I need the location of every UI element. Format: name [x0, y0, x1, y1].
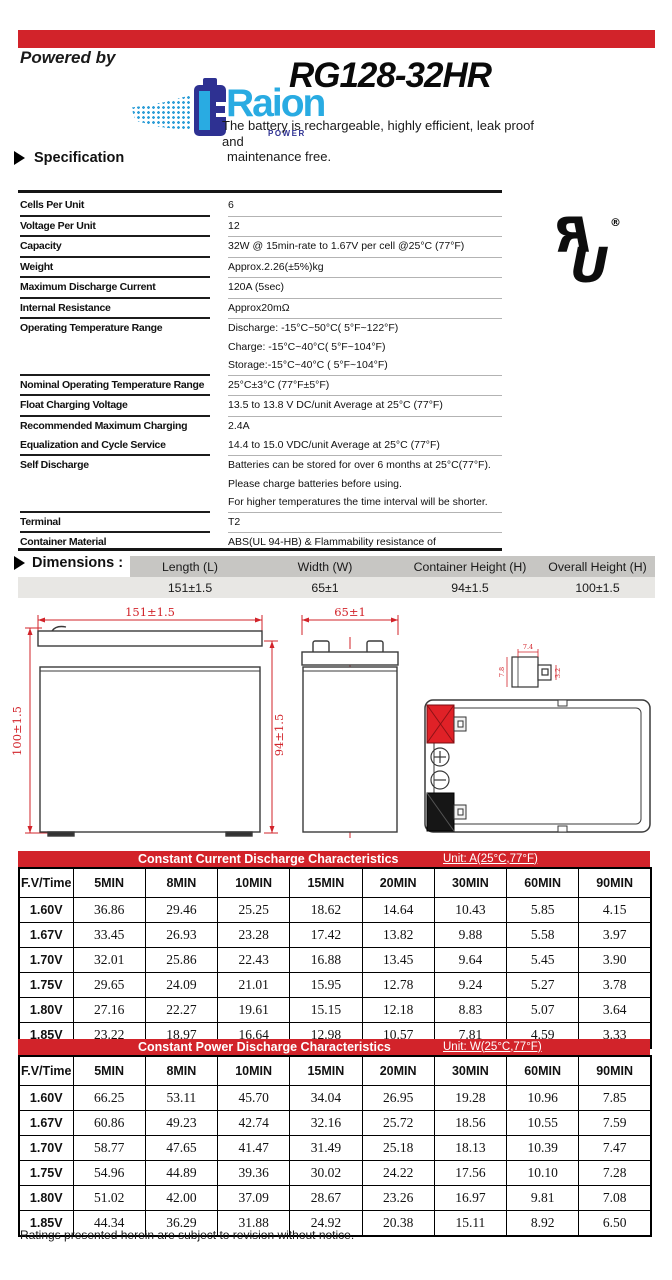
- svg-text:151±1.5: 151±1.5: [125, 605, 175, 619]
- table-header-cell: 60MIN: [507, 868, 579, 898]
- table-cell: 9.81: [507, 1186, 579, 1211]
- table-row-header-cell: 1.67V: [19, 1111, 73, 1136]
- spec-label: Nominal Operating Temperature Range: [20, 376, 210, 397]
- table-cell: 9.24: [434, 973, 506, 998]
- table-header-cell: 90MIN: [579, 868, 651, 898]
- top-view: [425, 700, 650, 832]
- table-header-cell: 20MIN: [362, 1056, 434, 1086]
- table-header-cell: 10MIN: [218, 868, 290, 898]
- table-row-header-cell: 1.75V: [19, 1161, 73, 1186]
- table-cell: 37.09: [218, 1186, 290, 1211]
- spec-row: Nominal Operating Temperature Range25°C±…: [20, 376, 502, 397]
- table-cell: 5.85: [507, 898, 579, 923]
- spec-label-line: Float Charging Voltage: [20, 396, 210, 415]
- dimension-value: 100±1.5: [540, 581, 655, 595]
- table-cell: 13.82: [362, 923, 434, 948]
- spec-value-line: Discharge: -15°C~50°C( 5°F~122°F): [228, 319, 502, 338]
- table-title: Constant Current Discharge Characteristi…: [138, 852, 399, 866]
- spec-label: Self Discharge: [20, 456, 210, 513]
- spec-value: 13.5 to 13.8 V DC/unit Average at 25°C (…: [228, 396, 502, 417]
- table-cell: 3.90: [579, 948, 651, 973]
- spec-label-line: Operating Temperature Range: [20, 319, 210, 338]
- table-cell: 7.85: [579, 1086, 651, 1111]
- battery-drawings: 151±1.5 100±1.5 94±1.5 65±1: [0, 605, 672, 852]
- top-red-bar: [18, 30, 655, 48]
- table-cell: 5.45: [507, 948, 579, 973]
- table-header-cell: 8MIN: [145, 1056, 217, 1086]
- spec-row: Float Charging Voltage13.5 to 13.8 V DC/…: [20, 396, 502, 417]
- table-cell: 15.11: [434, 1211, 506, 1237]
- spec-value-line: Approx20mΩ: [228, 299, 502, 318]
- footer-note: Ratings presented herein are subject to …: [20, 1228, 354, 1242]
- table-cell: 29.46: [145, 898, 217, 923]
- dimension-column-header: Length (L): [130, 560, 250, 574]
- spec-value-line: 13.5 to 13.8 V DC/unit Average at 25°C (…: [228, 396, 502, 415]
- spec-value: 6: [228, 196, 502, 217]
- table-header-cell: 10MIN: [218, 1056, 290, 1086]
- table-cell: 12.18: [362, 998, 434, 1023]
- dimension-value: 65±1: [250, 581, 400, 595]
- table-cell: 9.88: [434, 923, 506, 948]
- spec-label-line: Weight: [20, 258, 210, 277]
- table-cell: 66.25: [73, 1086, 145, 1111]
- table-row-header-cell: 1.60V: [19, 1086, 73, 1111]
- dimension-value: 94±1.5: [400, 581, 540, 595]
- table-cell: 39.36: [218, 1161, 290, 1186]
- spec-value: Approx20mΩ: [228, 299, 502, 320]
- spec-label-line: Internal Resistance: [20, 299, 210, 318]
- triangle-bullet-icon: [14, 556, 25, 570]
- table-row: 1.80V51.0242.0037.0928.6723.2616.979.817…: [19, 1186, 651, 1211]
- table-cell: 25.86: [145, 948, 217, 973]
- spec-value-line: 32W @ 15min-rate to 1.67V per cell @25°C…: [228, 237, 502, 256]
- spec-value: 2.4A14.4 to 15.0 VDC/unit Average at 25°…: [228, 417, 502, 456]
- spec-label-line: Equalization and Cycle Service: [20, 436, 210, 455]
- spec-value-line: 25°C±3°C (77°F±5°F): [228, 376, 502, 395]
- logo-dots: [131, 95, 191, 131]
- table-cell: 29.65: [73, 973, 145, 998]
- spec-label: Float Charging Voltage: [20, 396, 210, 417]
- table-cell: 31.49: [290, 1136, 362, 1161]
- powered-by-label: Powered by: [20, 48, 115, 68]
- table-cell: 25.18: [362, 1136, 434, 1161]
- table-cell: 60.86: [73, 1111, 145, 1136]
- table-cell: 5.07: [507, 998, 579, 1023]
- table-cell: 42.74: [218, 1111, 290, 1136]
- spec-label: Operating Temperature Range: [20, 319, 210, 376]
- table-cell: 8.83: [434, 998, 506, 1023]
- data-table: F.V/Time5MIN8MIN10MIN15MIN20MIN30MIN60MI…: [18, 867, 652, 1049]
- table-row: 1.60V36.8629.4625.2518.6214.6410.435.854…: [19, 898, 651, 923]
- table-cell: 47.65: [145, 1136, 217, 1161]
- spec-label-line: Capacity: [20, 237, 210, 256]
- table-row-header-cell: 1.75V: [19, 973, 73, 998]
- table-header-cell: 90MIN: [579, 1056, 651, 1086]
- svg-text:65±1: 65±1: [334, 605, 366, 619]
- table-cell: 22.27: [145, 998, 217, 1023]
- spec-value-line: Batteries can be stored for over 6 month…: [228, 456, 502, 475]
- dimension-column-header: Overall Height (H): [540, 560, 655, 574]
- table-header-cell: 60MIN: [507, 1056, 579, 1086]
- table-cell: 53.11: [145, 1086, 217, 1111]
- table-cell: 24.09: [145, 973, 217, 998]
- table-cell: 12.78: [362, 973, 434, 998]
- terminal-detail: 7.4 7.8 3.2: [498, 643, 562, 687]
- table-cell: 41.47: [218, 1136, 290, 1161]
- table-header-cell: F.V/Time: [19, 1056, 73, 1086]
- table-cell: 8.92: [507, 1211, 579, 1237]
- table-header-cell: 8MIN: [145, 868, 217, 898]
- table-row: 1.70V58.7747.6541.4731.4925.1818.1310.39…: [19, 1136, 651, 1161]
- table-cell: 13.45: [362, 948, 434, 973]
- table-header-cell: 30MIN: [434, 868, 506, 898]
- table-row-header-cell: 1.70V: [19, 948, 73, 973]
- table-row-header-cell: 1.60V: [19, 898, 73, 923]
- table-cell: 6.50: [579, 1211, 651, 1237]
- data-table: F.V/Time5MIN8MIN10MIN15MIN20MIN30MIN60MI…: [18, 1055, 652, 1237]
- table-cell: 33.45: [73, 923, 145, 948]
- spec-label: Cells Per Unit: [20, 196, 210, 217]
- table-cell: 25.72: [362, 1111, 434, 1136]
- table-cell: 16.88: [290, 948, 362, 973]
- dimensions-value-row: 151±1.565±194±1.5100±1.5: [18, 577, 655, 598]
- table-cell: 25.25: [218, 898, 290, 923]
- svg-text:7.8: 7.8: [498, 667, 506, 677]
- spec-label-line: Terminal: [20, 513, 210, 532]
- svg-text:100±1.5: 100±1.5: [10, 706, 24, 756]
- svg-text:94±1.5: 94±1.5: [272, 714, 286, 757]
- table-title: Constant Power Discharge Characteristics: [138, 1040, 391, 1054]
- table-cell: 30.02: [290, 1161, 362, 1186]
- table-row: 1.67V60.8649.2342.7432.1625.7218.5610.55…: [19, 1111, 651, 1136]
- spec-row: Cells Per Unit6: [20, 196, 502, 217]
- table-cell: 3.64: [579, 998, 651, 1023]
- discharge-table-power: Constant Power Discharge Characteristics…: [18, 1039, 650, 1237]
- table-cell: 19.28: [434, 1086, 506, 1111]
- side-view: 65±1: [302, 605, 398, 839]
- table-cell: 17.56: [434, 1161, 506, 1186]
- table-cell: 23.28: [218, 923, 290, 948]
- spec-top-rule: [18, 190, 502, 193]
- triangle-bullet-icon: [14, 151, 25, 165]
- table-cell: 16.97: [434, 1186, 506, 1211]
- table-cell: 10.96: [507, 1086, 579, 1111]
- table-cell: 22.43: [218, 948, 290, 973]
- table-cell: 10.43: [434, 898, 506, 923]
- spec-label-line: Voltage Per Unit: [20, 217, 210, 236]
- table-cell: 5.27: [507, 973, 579, 998]
- table-header-row: F.V/Time5MIN8MIN10MIN15MIN20MIN30MIN60MI…: [19, 1056, 651, 1086]
- discharge-table-current: Constant Current Discharge Characteristi…: [18, 851, 650, 1049]
- spec-value-line: 2.4A: [228, 417, 502, 436]
- table-cell: 34.04: [290, 1086, 362, 1111]
- table-cell: 18.62: [290, 898, 362, 923]
- table-cell: 49.23: [145, 1111, 217, 1136]
- spec-value-line: 6: [228, 196, 502, 215]
- dimensions-header-row: Length (L)Width (W)Container Height (H)O…: [130, 556, 655, 577]
- table-row: 1.70V32.0125.8622.4316.8813.459.645.453.…: [19, 948, 651, 973]
- table-header-cell: F.V/Time: [19, 868, 73, 898]
- model-title: RG128-32HR: [230, 56, 550, 96]
- dimensions-heading: Dimensions :: [32, 555, 123, 571]
- table-cell: 7.28: [579, 1161, 651, 1186]
- spec-value-line: Charge: -15°C~40°C( 5°F~104°F): [228, 338, 502, 357]
- datasheet-page: Powered by Raion POWER RG128-32HR The ba…: [0, 0, 672, 1280]
- spec-row: Internal ResistanceApprox20mΩ: [20, 299, 502, 320]
- table-row: 1.60V66.2553.1145.7034.0426.9519.2810.96…: [19, 1086, 651, 1111]
- table-cell: 14.64: [362, 898, 434, 923]
- spec-value: 12: [228, 217, 502, 238]
- svg-text:U: U: [570, 238, 609, 288]
- table-cell: 20.38: [362, 1211, 434, 1237]
- table-unit: Unit: A(25°C,77°F): [443, 853, 538, 865]
- spec-value-line: Please charge batteries before using.: [228, 475, 502, 494]
- description-line: The battery is rechargeable, highly effi…: [222, 118, 552, 149]
- table-cell: 21.01: [218, 973, 290, 998]
- table-cell: 58.77: [73, 1136, 145, 1161]
- spec-label: Recommended Maximum ChargingEqualization…: [20, 417, 210, 456]
- table-cell: 15.15: [290, 998, 362, 1023]
- table-cell: 45.70: [218, 1086, 290, 1111]
- spec-row: Capacity32W @ 15min-rate to 1.67V per ce…: [20, 237, 502, 258]
- svg-text:3.2: 3.2: [554, 668, 562, 678]
- spec-value: Discharge: -15°C~50°C( 5°F~122°F)Charge:…: [228, 319, 502, 376]
- spec-value: Approx.2.26(±5%)kg: [228, 258, 502, 279]
- table-cell: 23.26: [362, 1186, 434, 1211]
- spec-label-line: Maximum Discharge Current: [20, 278, 210, 297]
- spec-value: 25°C±3°C (77°F±5°F): [228, 376, 502, 397]
- table-cell: 9.64: [434, 948, 506, 973]
- spec-value-line: 12: [228, 217, 502, 236]
- table-row: 1.75V54.9644.8939.3630.0224.2217.5610.10…: [19, 1161, 651, 1186]
- table-cell: 10.39: [507, 1136, 579, 1161]
- table-cell: 18.13: [434, 1136, 506, 1161]
- spec-row: Maximum Discharge Current120A (5sec): [20, 278, 502, 299]
- spec-value-line: Approx.2.26(±5%)kg: [228, 258, 502, 277]
- table-header-cell: 30MIN: [434, 1056, 506, 1086]
- spec-value: 32W @ 15min-rate to 1.67V per cell @25°C…: [228, 237, 502, 258]
- table-cell: 36.86: [73, 898, 145, 923]
- dimension-column-header: Container Height (H): [400, 560, 540, 574]
- spec-bottom-rule: [18, 548, 502, 551]
- table-row: 1.67V33.4526.9323.2817.4213.829.885.583.…: [19, 923, 651, 948]
- table-cell: 54.96: [73, 1161, 145, 1186]
- front-view: [38, 627, 262, 837]
- spec-table: Cells Per Unit6Voltage Per Unit12Capacit…: [20, 196, 502, 570]
- table-cell: 32.16: [290, 1111, 362, 1136]
- spec-row: Operating Temperature RangeDischarge: -1…: [20, 319, 502, 376]
- table-header-cell: 15MIN: [290, 868, 362, 898]
- dimension-column-header: Width (W): [250, 560, 400, 574]
- table-header-cell: 5MIN: [73, 868, 145, 898]
- specification-heading: Specification: [34, 150, 124, 166]
- spec-label: Weight: [20, 258, 210, 279]
- spec-label: Capacity: [20, 237, 210, 258]
- spec-row: Self DischargeBatteries can be stored fo…: [20, 456, 502, 513]
- table-cell: 28.67: [290, 1186, 362, 1211]
- table-unit: Unit: W(25°C,77°F): [443, 1041, 542, 1053]
- svg-text:®: ®: [610, 216, 621, 229]
- table-row: 1.75V29.6524.0921.0115.9512.789.245.273.…: [19, 973, 651, 998]
- spec-row: Recommended Maximum ChargingEqualization…: [20, 417, 502, 456]
- table-row-header-cell: 1.80V: [19, 998, 73, 1023]
- table-row: 1.80V27.1622.2719.6115.1512.188.835.073.…: [19, 998, 651, 1023]
- table-cell: 24.22: [362, 1161, 434, 1186]
- table-cell: 32.01: [73, 948, 145, 973]
- table-cell: 44.89: [145, 1161, 217, 1186]
- table-cell: 17.42: [290, 923, 362, 948]
- dimension-value: 151±1.5: [130, 581, 250, 595]
- spec-value: 120A (5sec): [228, 278, 502, 299]
- product-description: The battery is rechargeable, highly effi…: [222, 118, 552, 165]
- spec-row: Voltage Per Unit12: [20, 217, 502, 238]
- table-row-header-cell: 1.70V: [19, 1136, 73, 1161]
- table-band: Constant Current Discharge Characteristi…: [18, 851, 650, 867]
- spec-label-line: Cells Per Unit: [20, 196, 210, 215]
- description-line: maintenance free.: [222, 149, 552, 165]
- table-header-cell: 15MIN: [290, 1056, 362, 1086]
- table-cell: 10.10: [507, 1161, 579, 1186]
- spec-value-line: T2: [228, 513, 502, 532]
- spec-label-line: Recommended Maximum Charging: [20, 417, 210, 436]
- spec-value-line: Storage:-15°C~40°C ( 5°F~104°F): [228, 356, 502, 375]
- spec-value-line: 120A (5sec): [228, 278, 502, 297]
- table-cell: 7.47: [579, 1136, 651, 1161]
- spec-label: Internal Resistance: [20, 299, 210, 320]
- spec-value: T2: [228, 513, 502, 534]
- spec-label: Voltage Per Unit: [20, 217, 210, 238]
- svg-text:7.4: 7.4: [523, 643, 533, 651]
- table-cell: 26.93: [145, 923, 217, 948]
- table-header-cell: 20MIN: [362, 868, 434, 898]
- spec-value-line: For higher temperatures the time interva…: [228, 493, 502, 512]
- table-cell: 5.58: [507, 923, 579, 948]
- spec-value-line: 14.4 to 15.0 VDC/unit Average at 25°C (7…: [228, 436, 502, 455]
- table-cell: 10.55: [507, 1111, 579, 1136]
- table-cell: 7.59: [579, 1111, 651, 1136]
- table-cell: 3.78: [579, 973, 651, 998]
- spec-value: Batteries can be stored for over 6 month…: [228, 456, 502, 513]
- spec-label-line: Nominal Operating Temperature Range: [20, 376, 210, 395]
- spec-row: TerminalT2: [20, 513, 502, 534]
- table-cell: 19.61: [218, 998, 290, 1023]
- spec-label: Maximum Discharge Current: [20, 278, 210, 299]
- ul-mark-icon: R U ®: [538, 212, 628, 288]
- table-header-cell: 5MIN: [73, 1056, 145, 1086]
- table-row-header-cell: 1.67V: [19, 923, 73, 948]
- table-cell: 7.08: [579, 1186, 651, 1211]
- table-cell: 26.95: [362, 1086, 434, 1111]
- table-row-header-cell: 1.80V: [19, 1186, 73, 1211]
- spec-label: Terminal: [20, 513, 210, 534]
- table-band: Constant Power Discharge Characteristics…: [18, 1039, 650, 1055]
- table-cell: 4.15: [579, 898, 651, 923]
- table-cell: 3.97: [579, 923, 651, 948]
- spec-row: WeightApprox.2.26(±5%)kg: [20, 258, 502, 279]
- table-cell: 42.00: [145, 1186, 217, 1211]
- table-cell: 51.02: [73, 1186, 145, 1211]
- table-cell: 15.95: [290, 973, 362, 998]
- table-header-row: F.V/Time5MIN8MIN10MIN15MIN20MIN30MIN60MI…: [19, 868, 651, 898]
- spec-label-line: Self Discharge: [20, 456, 210, 475]
- table-cell: 18.56: [434, 1111, 506, 1136]
- table-cell: 27.16: [73, 998, 145, 1023]
